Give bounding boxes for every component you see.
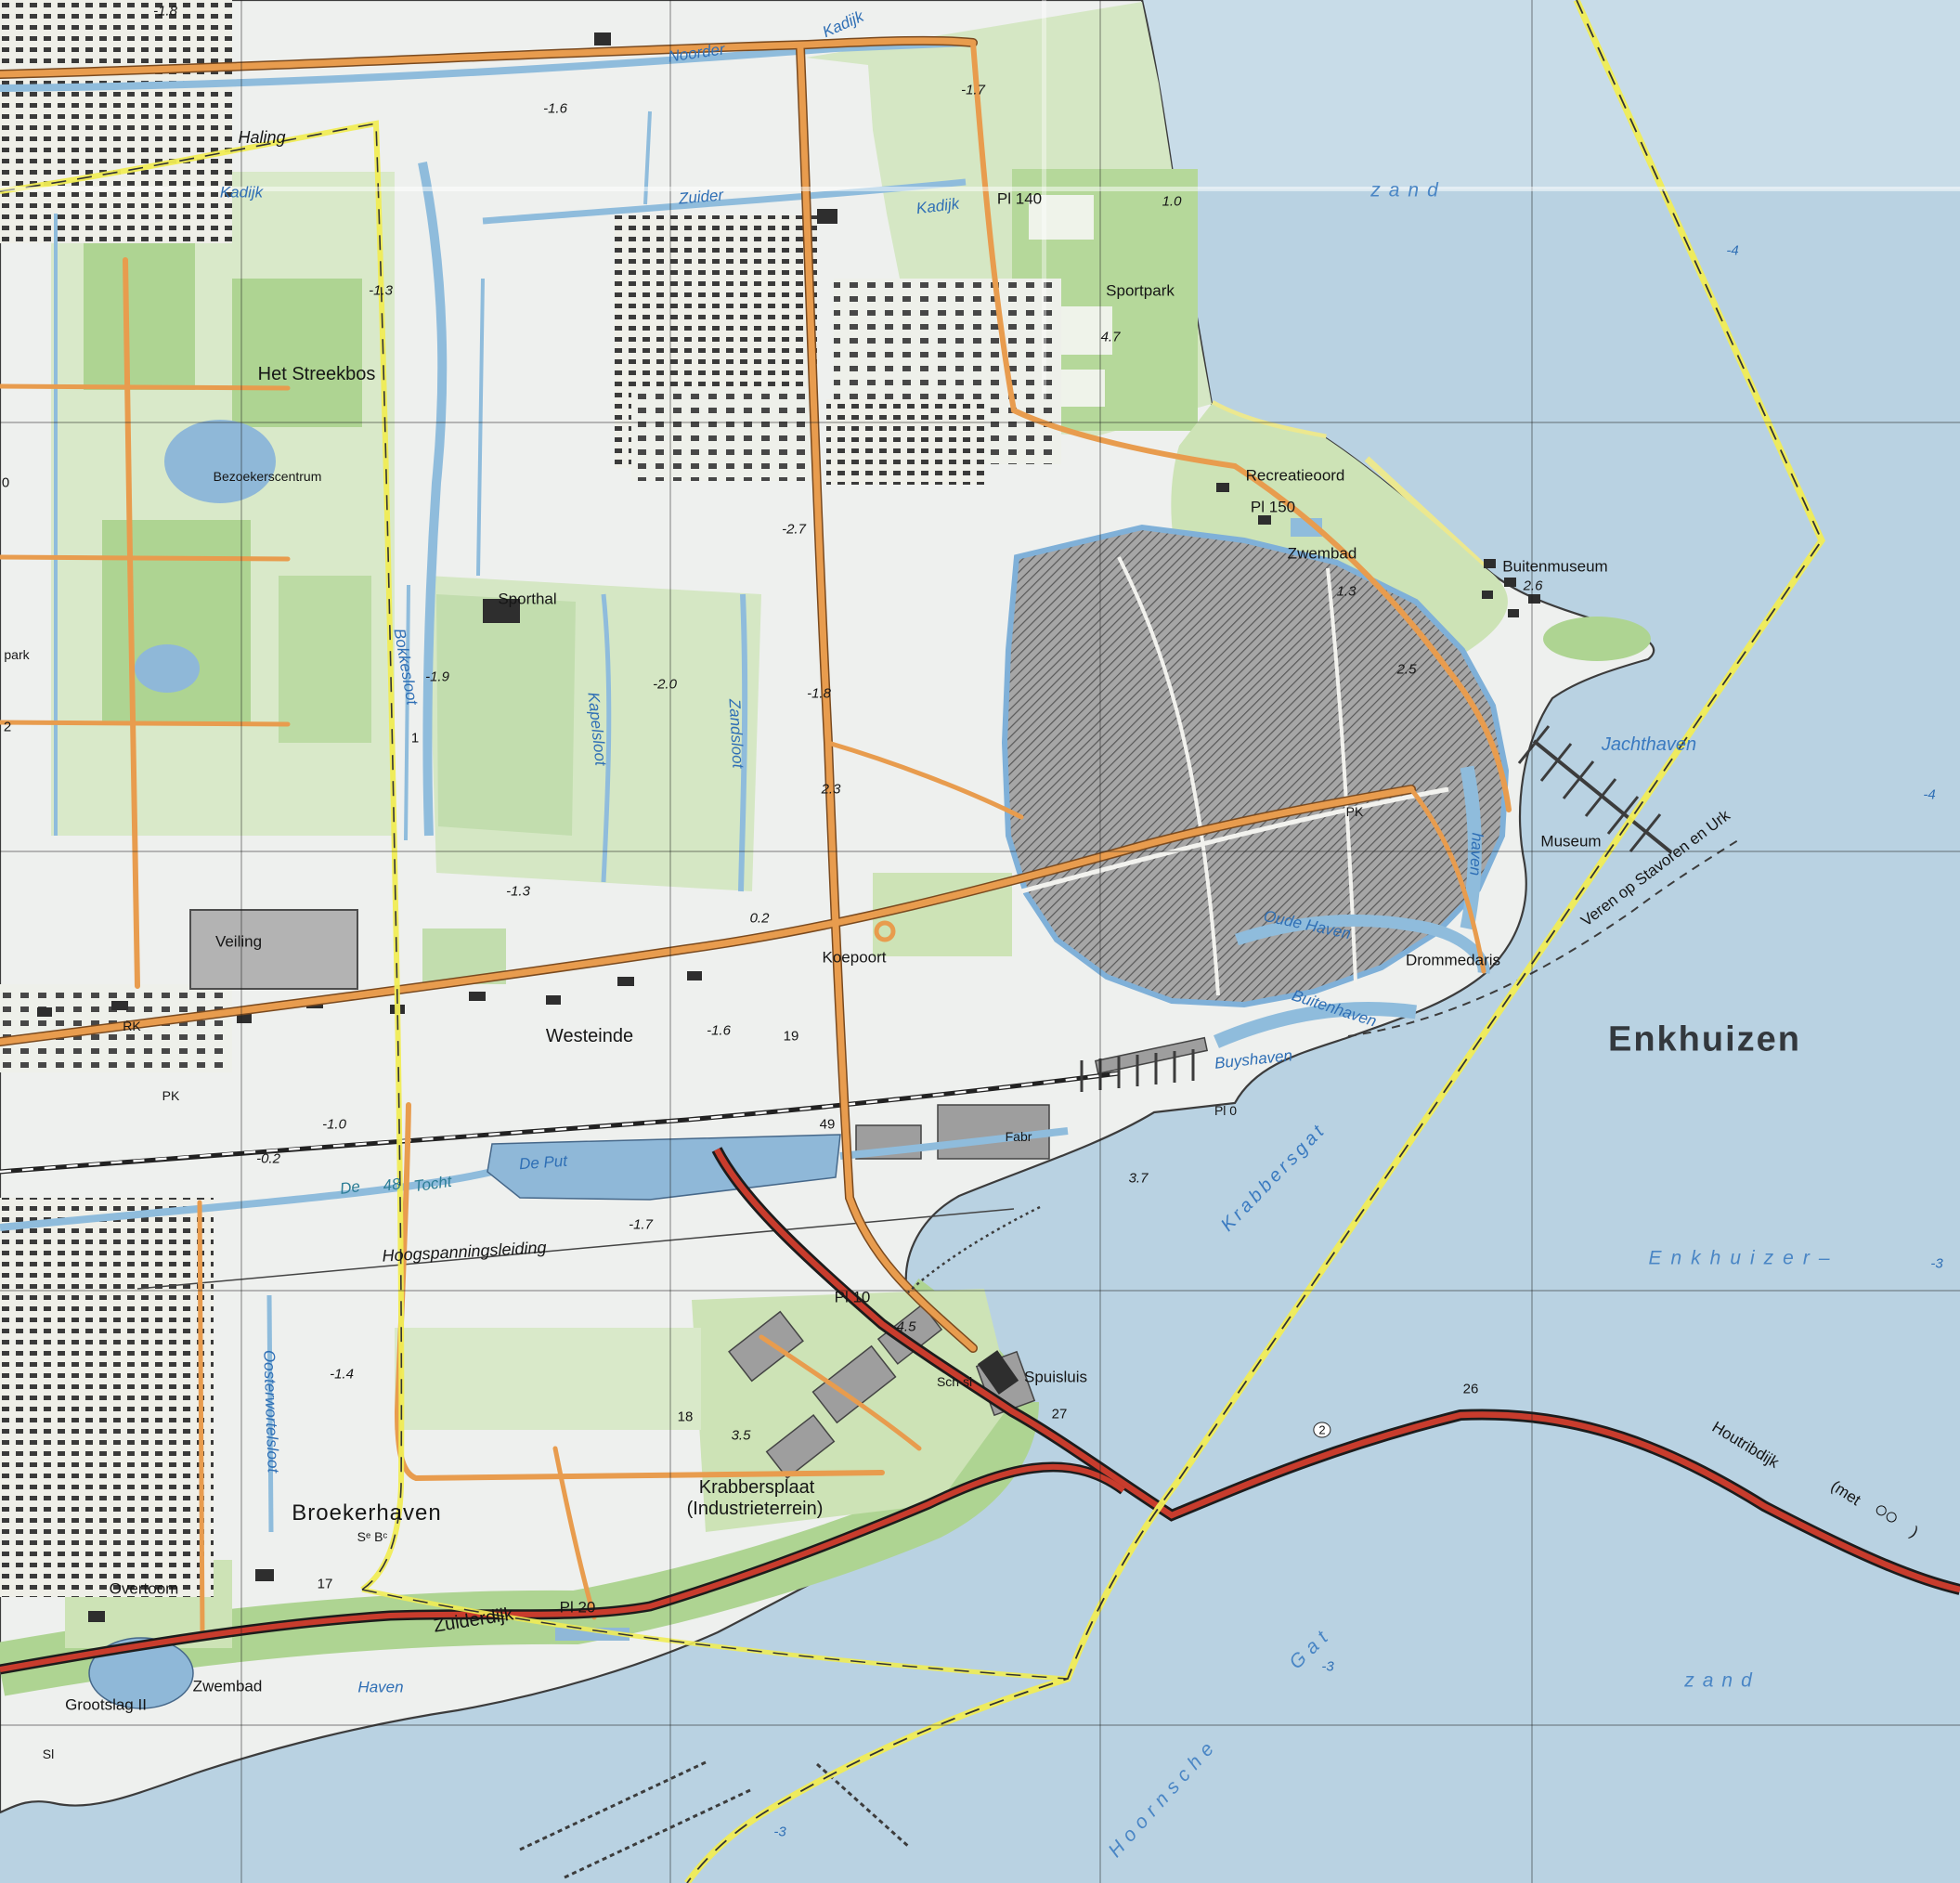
map-label: 4.7 bbox=[1101, 331, 1121, 344]
map-label: 19 bbox=[784, 1030, 799, 1044]
map-label: 1.0 bbox=[1162, 195, 1182, 209]
map-label: Bezoekerscentrum bbox=[214, 470, 322, 483]
map-label: Sporthal bbox=[498, 591, 556, 607]
map-label: 17 bbox=[318, 1578, 333, 1591]
map-label: Museum bbox=[1540, 834, 1601, 850]
map-label: 2 bbox=[1313, 1422, 1330, 1438]
map-label: 2.6 bbox=[1524, 579, 1543, 593]
map-label: De Put bbox=[518, 1153, 567, 1173]
map-label: Zuider bbox=[678, 187, 723, 206]
map-label: Haven bbox=[357, 1680, 403, 1695]
map-label: Zuiderdijk bbox=[433, 1604, 515, 1635]
map-label: RK bbox=[123, 1019, 140, 1032]
map-label: (Industrieterrein) bbox=[687, 1500, 824, 1518]
map-label: Pl 0 bbox=[1214, 1104, 1237, 1117]
map-label: 3.7 bbox=[1129, 1172, 1149, 1186]
map-label: Zwembad bbox=[1288, 546, 1357, 562]
map-label: Oosterwortelsloot bbox=[261, 1350, 281, 1474]
map-label: Enkhuizer– bbox=[1648, 1249, 1838, 1268]
map-label: 1 bbox=[411, 732, 419, 746]
map-label: Kadijk bbox=[820, 8, 865, 40]
map-label: 49 bbox=[820, 1118, 836, 1132]
map-label: -1.8 bbox=[153, 5, 177, 19]
map-label: Tocht bbox=[413, 1174, 453, 1195]
map-label: Krabbersplaat bbox=[699, 1478, 815, 1497]
map-label: Pl 20 bbox=[560, 1600, 596, 1616]
map-label: 26 bbox=[1463, 1383, 1479, 1396]
map-label: 27 bbox=[1052, 1408, 1068, 1422]
map-label: Sch sl bbox=[937, 1375, 972, 1388]
map-label: Buitenmuseum bbox=[1502, 559, 1607, 575]
map-label: zand bbox=[1370, 181, 1447, 201]
map-label: Hoogspanningsleiding bbox=[382, 1239, 547, 1264]
map-label: 4.5 bbox=[897, 1320, 916, 1334]
map-label: -0.2 bbox=[256, 1152, 280, 1166]
map-label: Kadijk bbox=[220, 185, 263, 201]
map-label: -3 bbox=[773, 1825, 785, 1839]
map-label: 2.5 bbox=[1397, 663, 1417, 677]
map-label: -1.7 bbox=[961, 84, 985, 97]
map-label: -1.4 bbox=[330, 1368, 354, 1382]
map-label: 18 bbox=[678, 1410, 694, 1424]
map-label: Bokkesloot bbox=[391, 628, 420, 707]
map-label: Zandsloot bbox=[727, 698, 746, 768]
map-label: Hoornsche bbox=[1105, 1734, 1222, 1861]
map-label: 0.2 bbox=[750, 912, 770, 926]
map-label: Westeinde bbox=[546, 1027, 633, 1045]
map-label: Sl bbox=[43, 1747, 54, 1760]
map-label: (met bbox=[1828, 1478, 1863, 1509]
map-label: Overtoom bbox=[110, 1581, 179, 1597]
map-label: Buitenhaven bbox=[1290, 987, 1378, 1029]
map-label: 2 bbox=[4, 721, 11, 734]
map-label: ) bbox=[1908, 1524, 1921, 1539]
map-label: 48 bbox=[382, 1175, 401, 1193]
map-label: -1.6 bbox=[543, 102, 567, 116]
map-label: Pl 150 bbox=[1251, 500, 1295, 515]
map-label: PK bbox=[162, 1089, 180, 1102]
map-label: Pl 10 bbox=[835, 1290, 871, 1305]
map-label: Kapelsloot bbox=[585, 692, 608, 767]
map-label: Recreatieoord bbox=[1246, 468, 1345, 484]
map-label: -1.7 bbox=[629, 1218, 653, 1232]
map-label: Het Streekbos bbox=[258, 365, 376, 383]
map-label: Spuisluis bbox=[1024, 1370, 1087, 1385]
map-label: Buyshaven bbox=[1214, 1047, 1292, 1071]
map-label: -3 bbox=[1321, 1660, 1333, 1674]
map-label: Sᵉ Bᶜ bbox=[357, 1530, 388, 1543]
map-label: Broekerhaven bbox=[292, 1502, 441, 1525]
map-label: Oude Haven bbox=[1263, 908, 1353, 941]
map-label: Drommedaris bbox=[1406, 953, 1500, 968]
map-label: -4 bbox=[1923, 788, 1935, 802]
map-label: 0 bbox=[2, 476, 9, 490]
map-label: 2.3 bbox=[822, 783, 841, 797]
map-label: -3 bbox=[1930, 1257, 1942, 1271]
map-label: -2.7 bbox=[782, 523, 806, 537]
map-label: Pl 140 bbox=[997, 191, 1042, 207]
map-label: -1.3 bbox=[369, 284, 393, 298]
map-label: 3.5 bbox=[732, 1429, 751, 1443]
map-label: Veiling bbox=[215, 934, 262, 950]
map-label: Houtribdijk bbox=[1709, 1419, 1782, 1471]
map-label: Kadijk bbox=[915, 196, 960, 217]
map-label: Fabr bbox=[1006, 1130, 1032, 1143]
map-label: Haling bbox=[238, 129, 285, 146]
labels-layer: Enkhuizen -1.8Haling-1.6-1.7NoorderKadij… bbox=[0, 0, 1960, 1883]
map-label: Krabbersgat bbox=[1218, 1120, 1330, 1235]
map-label: Koepoort bbox=[823, 950, 887, 966]
map-label: Jachthaven bbox=[1602, 735, 1696, 754]
map-label: Sportpark bbox=[1106, 283, 1175, 299]
map-label: De bbox=[339, 1178, 361, 1197]
map-label: Zwembad bbox=[193, 1679, 263, 1695]
map-label: Grootslag II bbox=[65, 1697, 147, 1713]
map-label: park bbox=[4, 648, 29, 661]
map-label: Veren op Stavoren en Urk bbox=[1578, 807, 1733, 929]
map-label: -1.3 bbox=[506, 885, 530, 899]
city-name-label: Enkhuizen bbox=[1608, 1020, 1801, 1060]
map-label: 1.3 bbox=[1337, 585, 1356, 599]
map-label: -1.0 bbox=[322, 1118, 346, 1132]
map-label: -1.8 bbox=[807, 687, 831, 701]
map-label: -1.9 bbox=[425, 670, 449, 684]
map-label: zand bbox=[1684, 1671, 1760, 1691]
map-label: Noorder bbox=[667, 41, 725, 64]
map-label: haven bbox=[1467, 832, 1485, 876]
map-label: -4 bbox=[1726, 244, 1738, 258]
map-label: -2.0 bbox=[653, 678, 677, 692]
map-label: PK bbox=[1346, 805, 1364, 818]
bicycle-icon bbox=[1875, 1502, 1900, 1524]
topographic-map-enkhuizen: Enkhuizen -1.8Haling-1.6-1.7NoorderKadij… bbox=[0, 0, 1960, 1883]
map-label: -1.6 bbox=[707, 1024, 731, 1038]
